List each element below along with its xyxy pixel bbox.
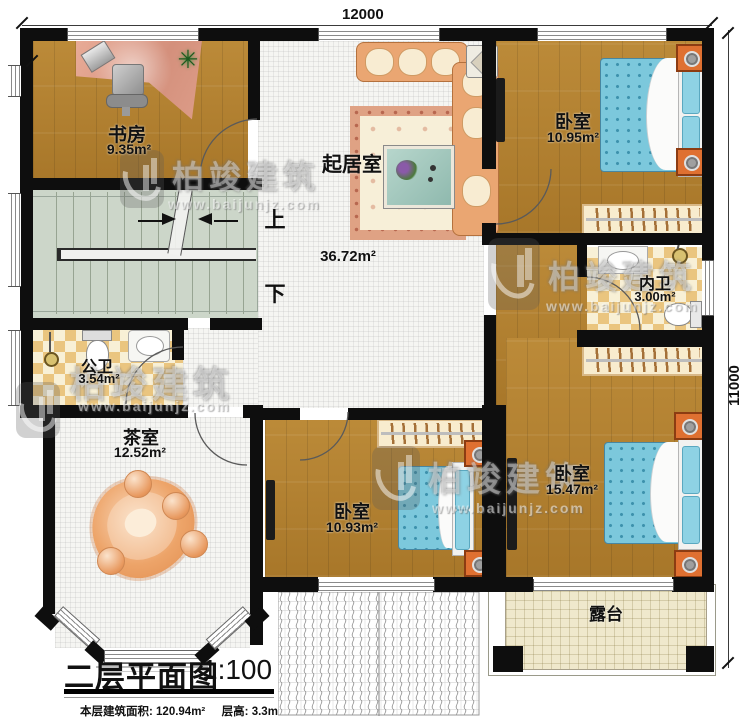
- footer-area-label: 本层建筑面积:: [80, 706, 156, 718]
- watermark-url: www.baijunjz.com: [168, 196, 321, 212]
- stairs-up-label: 上: [265, 204, 286, 234]
- room-area-bedroom-right: 15.47m²: [546, 481, 598, 497]
- door-arc: [300, 412, 348, 460]
- door-arc: [195, 413, 247, 465]
- title-underline-thin: [64, 697, 274, 698]
- watermark-brand: 柏竣建筑: [172, 152, 320, 198]
- dimension-label-top: 12000: [342, 6, 384, 23]
- watermark-url: www.baijunjz.com: [78, 398, 231, 414]
- room-area-bedroom-bottom: 10.93m²: [326, 519, 378, 535]
- room-area-tearoom: 12.52m²: [114, 444, 166, 460]
- dimension-line-right: [728, 30, 729, 668]
- watermark-url: www.baijunjz.com: [546, 298, 699, 314]
- room-area-study: 9.35m²: [107, 141, 151, 157]
- footer-area-value: 120.94m²: [156, 706, 205, 718]
- footer-stats: 本层建筑面积: 120.94m² 层高: 3.3m: [80, 703, 278, 719]
- watermark-logo: [120, 150, 164, 208]
- room-label-terrace: 露台: [589, 600, 623, 625]
- room-label-living: 起居室: [322, 148, 382, 177]
- dimension-label-right: 11000: [726, 365, 743, 406]
- watermark-logo: [488, 238, 540, 310]
- plan-scale: 1:100: [202, 654, 272, 686]
- watermark-logo: [16, 382, 60, 438]
- stairs-down-label: 下: [265, 278, 286, 308]
- footer-height-value: 3.3m: [252, 706, 278, 718]
- footer-height-label: 层高:: [222, 706, 252, 718]
- watermark-logo: [372, 446, 420, 510]
- watermark-url: www.baijunjz.com: [432, 500, 585, 516]
- dimension-line-top: [22, 25, 712, 26]
- room-area-bedroom-top: 10.95m²: [547, 129, 599, 145]
- room-area-bath-public: 3.54m²: [78, 371, 119, 386]
- room-area-living: 36.72m²: [320, 248, 376, 265]
- floor-plan: ✳: [0, 0, 750, 726]
- room-area-bath-inner: 3.00m²: [634, 289, 675, 304]
- door-arc: [496, 169, 551, 224]
- title-underline: [64, 689, 274, 694]
